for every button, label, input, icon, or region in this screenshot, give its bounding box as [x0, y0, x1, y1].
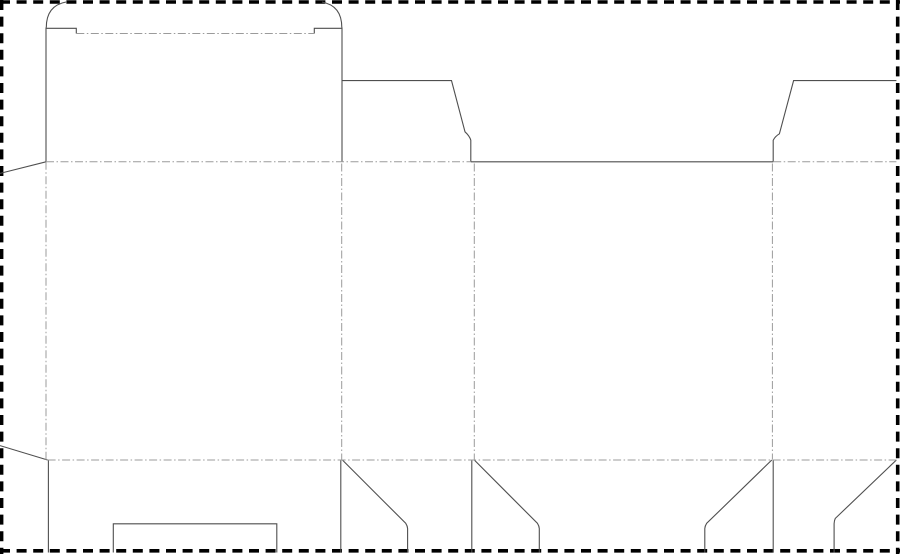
glue-flap-top-edge-cut [0, 162, 46, 174]
bottom-flap-c-diagonal-cut [705, 460, 772, 553]
bottom-flap-a-diagonal-cut [342, 460, 407, 553]
lid-shoulder-left-cut [46, 28, 76, 33]
bottom-flap-d-diagonal-cut [834, 460, 896, 553]
tuck-flap-left-corner-arc [46, 2, 66, 28]
glue-flap-bottom-edge-cut [0, 446, 48, 460]
dieline-sheet [0, 0, 900, 554]
tuck-flap-right-corner-arc [322, 2, 342, 28]
bottom-flap-b-diagonal-cut [474, 460, 539, 553]
dust-flap-top-left-cut [342, 81, 471, 162]
dust-flap-top-right-cut [773, 81, 896, 162]
dieline-canvas [0, 0, 900, 554]
bottom-lock-notch-cut [113, 524, 276, 553]
lid-shoulder-right-cut [314, 28, 342, 33]
